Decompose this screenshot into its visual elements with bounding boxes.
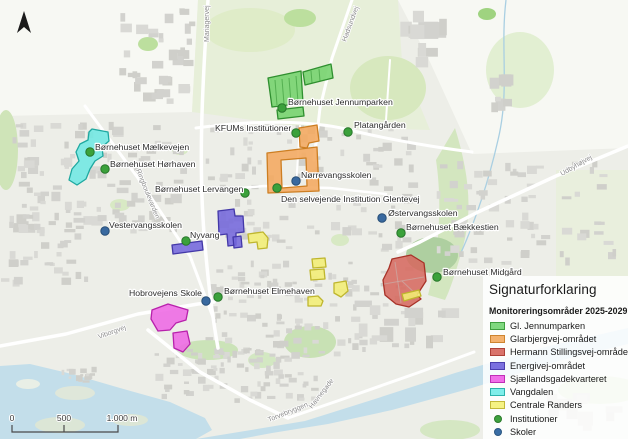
road-label: Mariagervej bbox=[204, 5, 211, 42]
building bbox=[136, 198, 144, 202]
building bbox=[445, 251, 451, 256]
building bbox=[247, 147, 252, 151]
building bbox=[299, 159, 306, 166]
building bbox=[10, 251, 16, 259]
building bbox=[490, 78, 500, 89]
legend-item: Vangdalen bbox=[489, 385, 626, 398]
institution-marker[interactable] bbox=[433, 273, 441, 281]
building bbox=[287, 139, 292, 143]
building bbox=[503, 99, 512, 107]
building bbox=[307, 323, 313, 326]
building bbox=[562, 196, 572, 199]
building bbox=[23, 257, 32, 260]
building bbox=[27, 188, 33, 193]
building bbox=[9, 259, 19, 267]
building bbox=[590, 167, 594, 174]
building bbox=[251, 261, 254, 268]
building bbox=[303, 355, 310, 358]
building bbox=[24, 160, 35, 168]
building bbox=[75, 233, 82, 239]
building bbox=[507, 237, 512, 240]
legend-dot-icon bbox=[489, 415, 506, 423]
building bbox=[80, 369, 87, 374]
building bbox=[178, 363, 183, 366]
marker-label: Nyvang bbox=[190, 230, 220, 240]
building bbox=[342, 227, 351, 235]
building bbox=[119, 68, 126, 75]
building bbox=[216, 269, 223, 272]
school-marker[interactable] bbox=[378, 214, 386, 222]
legend-item: Hermann Stillingsvej-området bbox=[489, 346, 626, 359]
north-arrow-icon bbox=[8, 7, 38, 41]
building bbox=[252, 167, 256, 175]
marker-label: Børnehuset Lervangen bbox=[155, 184, 244, 194]
building bbox=[66, 222, 72, 227]
building bbox=[383, 143, 392, 151]
legend-items: Gl. JennumparkenGlarbjergvej-områdetHerm… bbox=[489, 319, 626, 439]
building bbox=[171, 194, 182, 203]
building bbox=[215, 353, 219, 358]
building bbox=[466, 205, 476, 210]
building bbox=[247, 200, 251, 205]
building bbox=[159, 76, 168, 85]
building bbox=[481, 194, 486, 200]
building bbox=[404, 344, 409, 349]
building bbox=[22, 204, 27, 208]
marker-label: Børnehuset Jennumparken bbox=[288, 97, 393, 107]
building bbox=[16, 124, 23, 127]
building bbox=[383, 303, 389, 306]
building bbox=[261, 386, 266, 391]
building bbox=[164, 385, 172, 390]
building bbox=[120, 13, 125, 22]
building bbox=[332, 274, 336, 279]
building bbox=[604, 241, 614, 245]
building bbox=[54, 267, 63, 273]
marker-label: Hobrovejens Skole bbox=[129, 288, 202, 298]
building bbox=[541, 235, 550, 239]
building bbox=[64, 240, 71, 243]
building bbox=[311, 388, 319, 391]
legend-subtitle: Monitoreringsområder 2025-2029 bbox=[489, 306, 626, 316]
building bbox=[147, 29, 159, 34]
building bbox=[394, 158, 402, 165]
building bbox=[348, 338, 351, 343]
building bbox=[263, 222, 270, 229]
building bbox=[84, 277, 88, 283]
building bbox=[189, 22, 195, 27]
building bbox=[228, 174, 233, 177]
building bbox=[459, 251, 464, 257]
building bbox=[128, 153, 137, 158]
scale-bar: 0 500 1.000 m bbox=[0, 404, 150, 439]
legend-item-label: Institutioner bbox=[510, 414, 558, 424]
building bbox=[372, 315, 378, 319]
building bbox=[30, 206, 39, 210]
building bbox=[273, 362, 279, 369]
building bbox=[258, 160, 262, 165]
building bbox=[19, 182, 30, 187]
building bbox=[527, 166, 537, 174]
building bbox=[286, 393, 293, 399]
building bbox=[476, 191, 483, 195]
institution-marker[interactable] bbox=[214, 293, 222, 301]
building bbox=[34, 224, 41, 230]
building bbox=[187, 349, 193, 352]
school-marker[interactable] bbox=[202, 297, 210, 305]
building bbox=[107, 184, 115, 187]
building bbox=[76, 375, 83, 381]
building bbox=[440, 164, 448, 168]
map-window: MariagervejHadsundvejUdbyhøjvejRingboule… bbox=[0, 0, 628, 439]
building bbox=[488, 179, 497, 185]
building bbox=[370, 305, 381, 315]
building bbox=[457, 161, 463, 169]
building bbox=[55, 213, 59, 221]
building bbox=[128, 73, 141, 77]
building bbox=[219, 178, 227, 181]
building bbox=[238, 277, 245, 281]
building bbox=[272, 264, 281, 269]
building bbox=[522, 213, 528, 221]
scale-label-mid: 500 bbox=[57, 413, 71, 423]
building bbox=[315, 284, 323, 287]
building bbox=[159, 38, 164, 42]
building bbox=[351, 317, 360, 322]
building bbox=[245, 367, 248, 372]
building bbox=[76, 272, 82, 279]
building bbox=[599, 174, 607, 177]
building bbox=[340, 150, 344, 157]
legend-swatch-icon bbox=[489, 335, 506, 343]
building bbox=[469, 258, 478, 263]
building bbox=[65, 202, 72, 210]
building bbox=[238, 272, 245, 276]
marker-label: Børnehuset Bækkestien bbox=[406, 222, 499, 232]
building bbox=[299, 398, 304, 401]
building bbox=[222, 332, 228, 337]
building bbox=[9, 222, 14, 228]
building bbox=[183, 50, 189, 59]
building bbox=[278, 374, 284, 379]
building bbox=[437, 191, 441, 199]
legend-swatch-icon bbox=[489, 362, 506, 370]
building bbox=[74, 218, 86, 223]
building bbox=[65, 164, 69, 169]
building bbox=[187, 39, 192, 45]
building bbox=[276, 322, 284, 325]
building bbox=[292, 282, 296, 285]
building bbox=[464, 184, 472, 189]
school-marker[interactable] bbox=[292, 177, 300, 185]
building bbox=[337, 339, 345, 345]
building bbox=[117, 188, 129, 193]
building bbox=[76, 226, 84, 229]
building bbox=[291, 352, 300, 359]
building bbox=[121, 24, 132, 33]
building bbox=[198, 377, 206, 384]
legend-swatch-icon bbox=[489, 348, 506, 356]
building bbox=[254, 363, 260, 369]
legend-item-label: Energivej-området bbox=[510, 361, 585, 371]
legend-item: Sjællandsgadekvarteret bbox=[489, 372, 626, 385]
building bbox=[416, 57, 429, 67]
building bbox=[370, 180, 379, 186]
building bbox=[278, 315, 282, 320]
building bbox=[534, 224, 539, 230]
building bbox=[92, 367, 97, 373]
marker-label: Østervangsskolen bbox=[388, 208, 458, 218]
building bbox=[174, 180, 184, 184]
legend-item: Institutioner bbox=[489, 412, 626, 425]
building bbox=[247, 315, 256, 322]
building bbox=[438, 311, 446, 318]
building bbox=[286, 246, 293, 249]
building bbox=[361, 207, 367, 212]
building bbox=[90, 373, 96, 376]
legend-item: Energivej-området bbox=[489, 359, 626, 372]
building bbox=[243, 137, 247, 145]
institution-marker[interactable] bbox=[278, 104, 286, 112]
institution-marker[interactable] bbox=[292, 129, 300, 137]
building bbox=[364, 286, 369, 292]
building bbox=[266, 335, 274, 338]
building bbox=[23, 214, 30, 218]
building bbox=[382, 244, 392, 250]
scale-label-end: 1.000 m bbox=[107, 413, 138, 423]
building bbox=[97, 207, 101, 212]
building bbox=[304, 347, 308, 353]
building bbox=[234, 398, 240, 403]
legend-panel: Signaturforklaring Monitoreringsområder … bbox=[483, 276, 628, 439]
legend-title: Signaturforklaring bbox=[489, 282, 626, 297]
building bbox=[20, 260, 28, 265]
building bbox=[115, 203, 121, 208]
building bbox=[180, 9, 190, 15]
building bbox=[335, 316, 340, 322]
legend-item-label: Glarbjergvej-området bbox=[510, 334, 596, 344]
building bbox=[453, 232, 458, 235]
building bbox=[155, 353, 159, 356]
building bbox=[74, 212, 82, 215]
building bbox=[280, 341, 289, 347]
building bbox=[241, 386, 248, 392]
building bbox=[224, 352, 230, 357]
building bbox=[327, 137, 332, 141]
building bbox=[49, 221, 56, 225]
institution-marker[interactable] bbox=[273, 184, 281, 192]
institution-marker[interactable] bbox=[182, 237, 190, 245]
building bbox=[51, 192, 60, 201]
building bbox=[66, 260, 76, 264]
building bbox=[229, 313, 237, 316]
building bbox=[248, 348, 252, 351]
building bbox=[413, 11, 424, 23]
building bbox=[594, 231, 604, 235]
institution-marker[interactable] bbox=[397, 229, 405, 237]
building bbox=[562, 228, 572, 235]
institution-marker[interactable] bbox=[344, 128, 352, 136]
building bbox=[235, 199, 240, 207]
building bbox=[392, 343, 399, 347]
building bbox=[384, 186, 393, 191]
building bbox=[239, 300, 247, 303]
building bbox=[184, 390, 190, 394]
building bbox=[18, 143, 28, 148]
building bbox=[156, 91, 162, 99]
building bbox=[484, 258, 493, 264]
building bbox=[356, 135, 361, 140]
building bbox=[162, 394, 167, 399]
building bbox=[501, 261, 511, 265]
marker-label: Nørrevangsskolen bbox=[301, 170, 372, 180]
building bbox=[260, 275, 264, 278]
building bbox=[34, 251, 38, 258]
building bbox=[227, 357, 230, 363]
building bbox=[280, 384, 289, 387]
building bbox=[232, 277, 239, 280]
building bbox=[594, 221, 601, 225]
building bbox=[319, 130, 328, 137]
building bbox=[211, 365, 217, 368]
building bbox=[355, 333, 360, 340]
building bbox=[395, 241, 402, 249]
building bbox=[211, 284, 217, 289]
scale-label-start: 0 bbox=[10, 413, 15, 423]
building bbox=[315, 230, 320, 234]
building bbox=[78, 124, 82, 130]
legend-swatch-icon bbox=[489, 322, 506, 330]
building bbox=[235, 173, 245, 179]
building bbox=[536, 166, 544, 169]
building bbox=[124, 50, 130, 57]
building bbox=[206, 337, 214, 340]
building bbox=[362, 347, 366, 352]
building bbox=[84, 376, 91, 380]
building bbox=[228, 297, 233, 301]
building bbox=[208, 385, 213, 389]
building bbox=[250, 392, 257, 397]
building bbox=[115, 213, 125, 219]
school-marker[interactable] bbox=[101, 227, 109, 235]
building bbox=[315, 326, 320, 330]
building bbox=[521, 251, 530, 258]
building bbox=[165, 14, 174, 24]
building bbox=[178, 84, 190, 93]
building bbox=[112, 127, 124, 136]
building bbox=[303, 384, 307, 388]
building bbox=[510, 172, 518, 176]
building bbox=[13, 137, 17, 143]
building bbox=[98, 215, 107, 221]
building bbox=[69, 376, 72, 378]
building bbox=[41, 192, 50, 197]
building bbox=[247, 222, 255, 226]
institution-marker[interactable] bbox=[101, 165, 109, 173]
building bbox=[372, 335, 388, 341]
building bbox=[220, 351, 224, 355]
legend-item: Skoler bbox=[489, 425, 626, 438]
legend-dot-icon bbox=[489, 428, 506, 436]
building bbox=[163, 364, 170, 367]
legend-item-label: Gl. Jennumparken bbox=[510, 321, 585, 331]
building bbox=[454, 199, 458, 202]
building bbox=[70, 154, 75, 158]
building bbox=[62, 272, 68, 276]
building bbox=[51, 123, 62, 129]
building bbox=[89, 170, 95, 179]
institution-marker[interactable] bbox=[86, 148, 94, 156]
building bbox=[575, 192, 580, 197]
building bbox=[577, 233, 586, 240]
legend-swatch-icon bbox=[489, 388, 506, 396]
building bbox=[257, 381, 260, 386]
marker-label: Børnehuset Elmehaven bbox=[224, 286, 315, 296]
building bbox=[14, 277, 23, 285]
building bbox=[184, 382, 189, 385]
building bbox=[363, 154, 370, 162]
building bbox=[474, 171, 483, 178]
building bbox=[167, 358, 175, 365]
legend-item: Gl. Jennumparken bbox=[489, 319, 626, 332]
marker-label: Vestervangsskolen bbox=[109, 220, 182, 230]
building bbox=[58, 244, 64, 249]
building bbox=[83, 380, 90, 382]
building bbox=[255, 313, 261, 318]
building bbox=[426, 336, 433, 349]
building bbox=[32, 212, 39, 221]
building bbox=[62, 370, 65, 375]
building bbox=[57, 252, 62, 257]
building bbox=[495, 97, 501, 102]
legend-swatch-icon bbox=[489, 401, 506, 409]
building bbox=[359, 324, 368, 337]
building bbox=[127, 201, 135, 207]
building bbox=[444, 198, 454, 202]
building bbox=[336, 205, 341, 211]
building bbox=[331, 222, 340, 230]
building bbox=[120, 180, 131, 185]
building bbox=[153, 125, 161, 130]
building bbox=[298, 372, 304, 375]
building bbox=[264, 382, 271, 386]
building bbox=[240, 313, 248, 318]
building bbox=[47, 262, 54, 265]
building bbox=[405, 308, 424, 318]
building bbox=[249, 141, 253, 144]
legend-item-label: Skoler bbox=[510, 427, 536, 437]
building bbox=[167, 98, 174, 104]
building bbox=[41, 242, 49, 249]
building bbox=[483, 171, 492, 177]
building bbox=[520, 221, 529, 229]
building bbox=[230, 147, 234, 155]
building bbox=[355, 301, 372, 307]
building bbox=[437, 246, 441, 253]
building bbox=[403, 237, 412, 242]
building bbox=[265, 371, 274, 375]
building bbox=[40, 201, 45, 204]
building bbox=[270, 354, 276, 357]
building bbox=[34, 126, 44, 133]
building bbox=[220, 368, 225, 374]
building bbox=[242, 164, 249, 172]
building bbox=[191, 352, 198, 355]
building bbox=[64, 229, 75, 232]
building bbox=[183, 60, 193, 66]
building bbox=[109, 122, 114, 130]
building bbox=[406, 151, 412, 155]
